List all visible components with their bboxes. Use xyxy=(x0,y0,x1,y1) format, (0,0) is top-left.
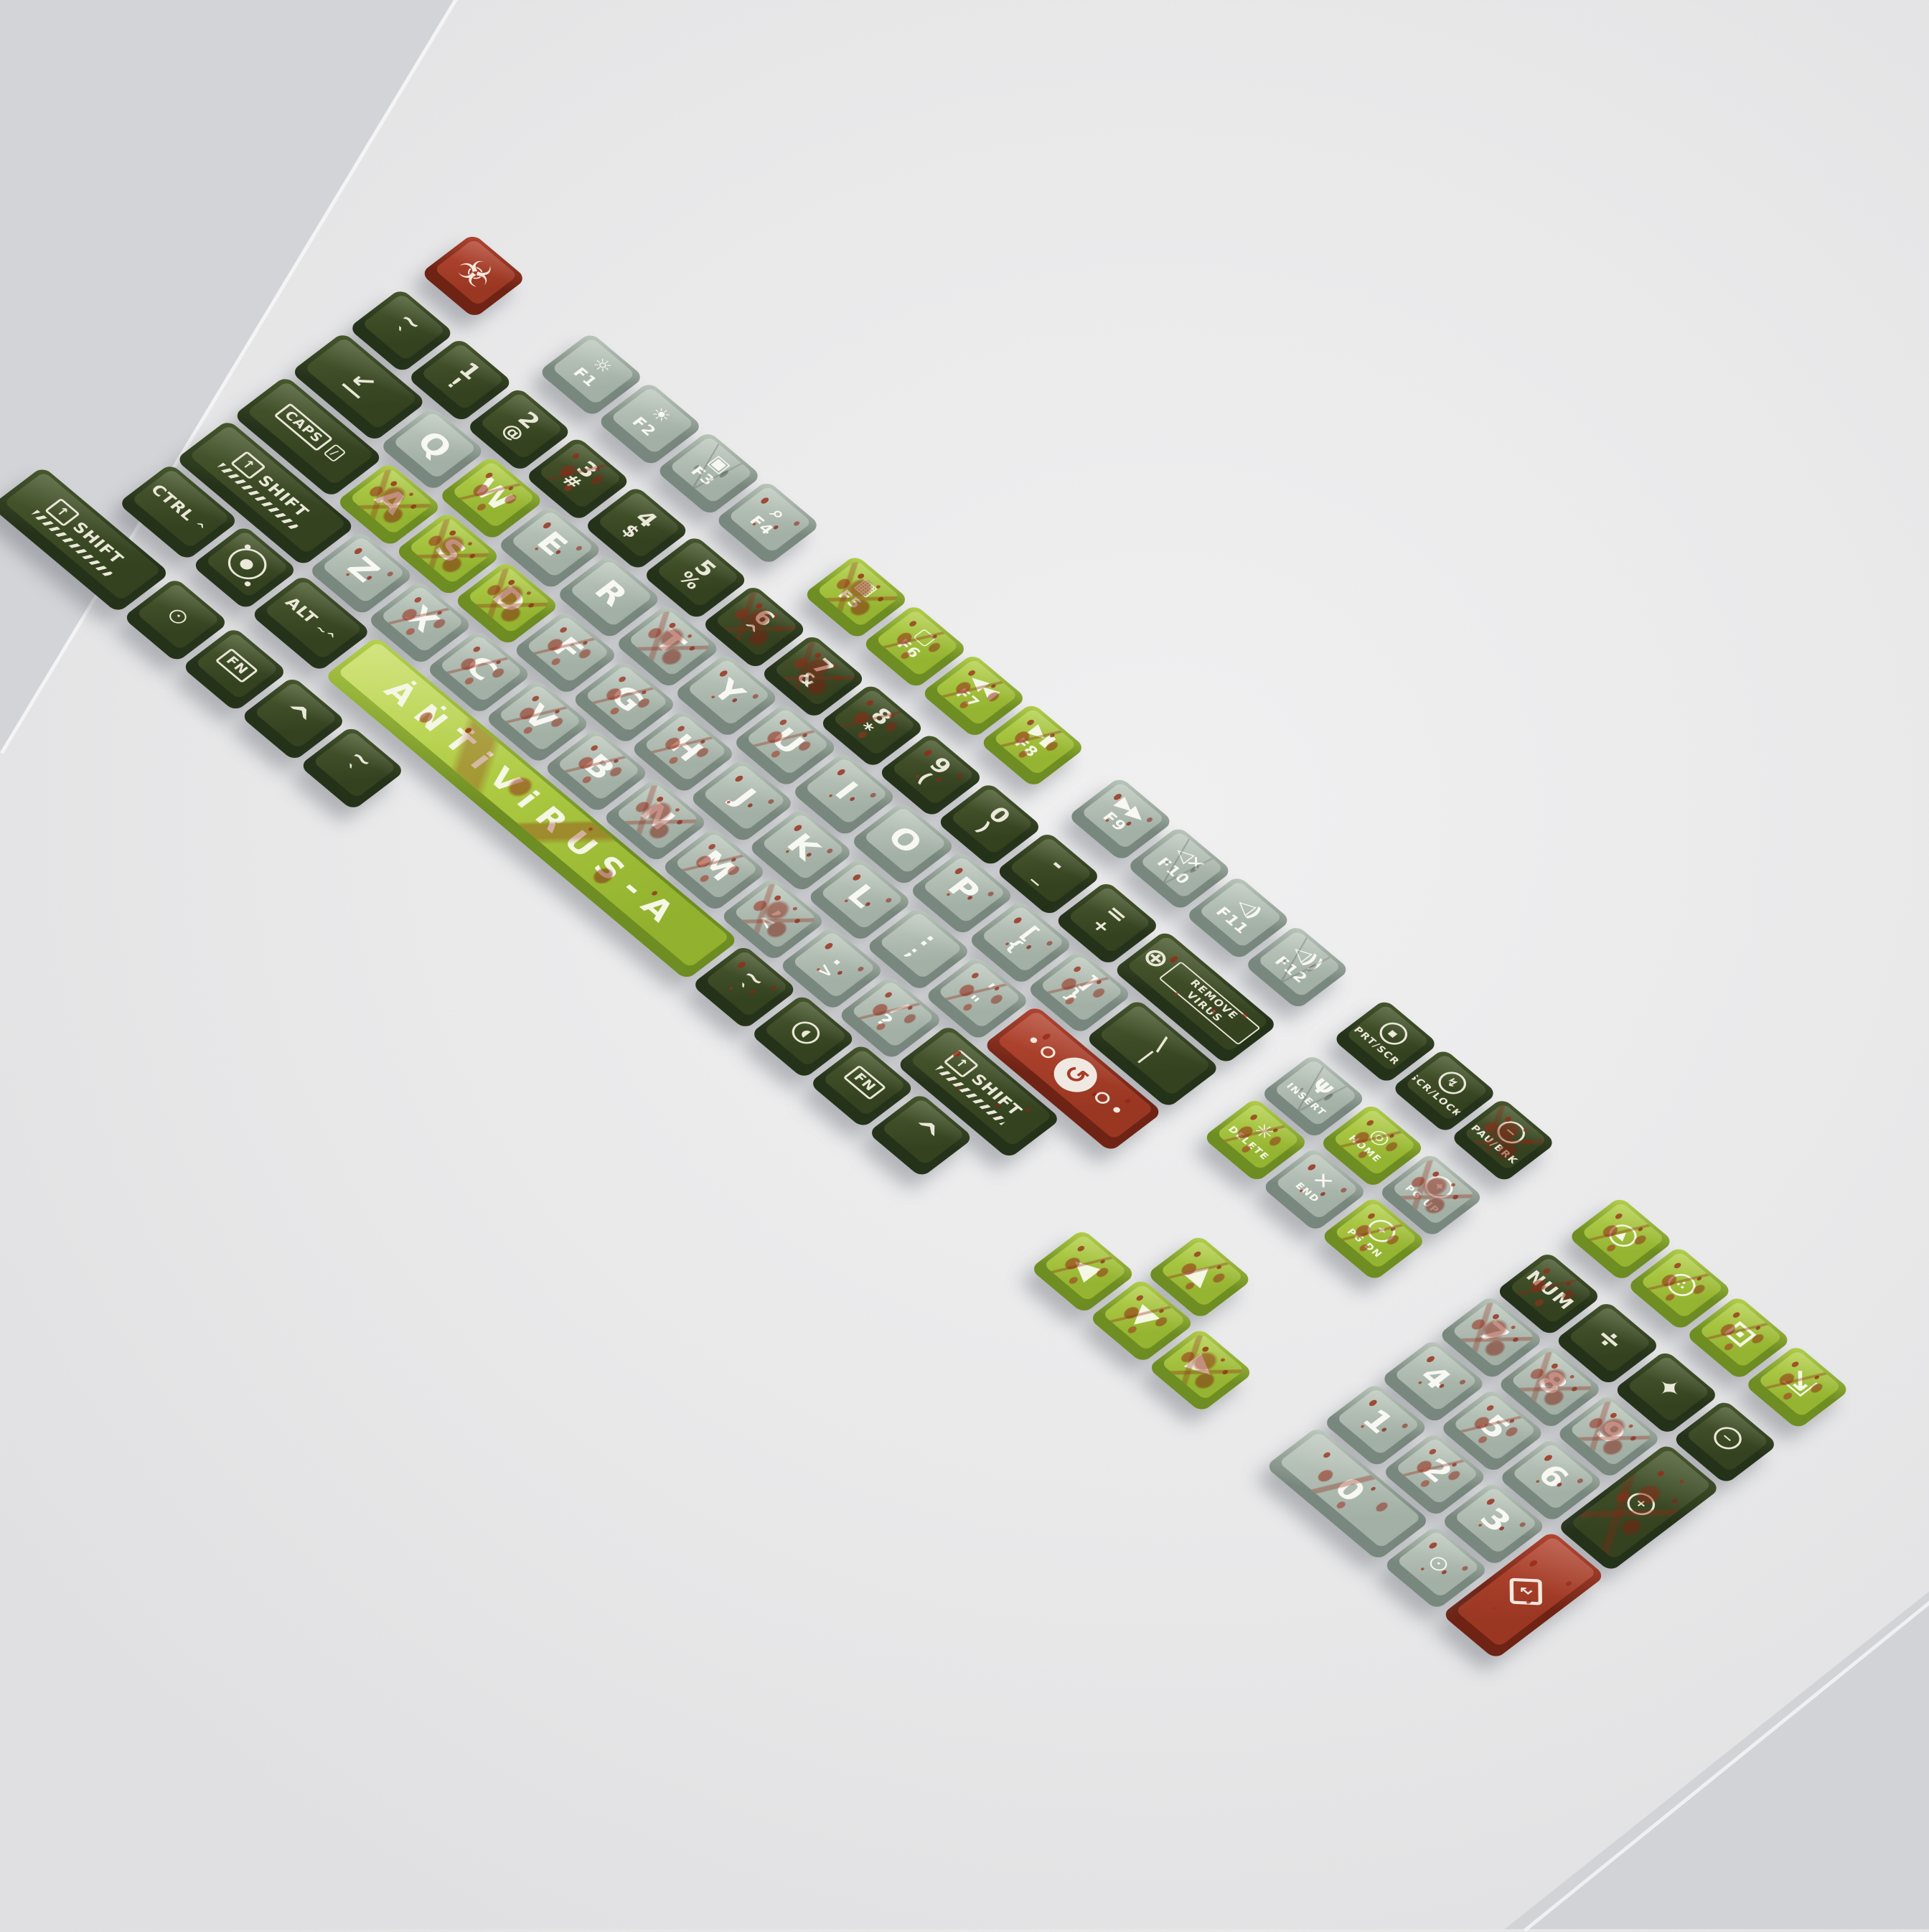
small-target-icon: • xyxy=(166,606,189,626)
numpad-minus-icon: − xyxy=(1708,1422,1747,1454)
arrow-down-icon: ▼ xyxy=(1124,1301,1164,1333)
numpad-multiply-icon: ✦ xyxy=(1648,1373,1689,1405)
arrow-left-icon: ◀ xyxy=(1065,1252,1105,1284)
return-loop-icon: ↺ xyxy=(1045,1051,1106,1099)
numpad-plus-icon: + xyxy=(1621,1488,1661,1519)
return-arrow-icon: ⇲ xyxy=(1778,1366,1821,1401)
search-icon: ⌕ xyxy=(766,505,789,522)
decimal-dot-icon: • xyxy=(1426,1554,1450,1574)
tab-arrow-icon: ↙ xyxy=(342,367,381,398)
key-np0: 0 xyxy=(1264,1426,1430,1561)
biohazard-icon: ☣ xyxy=(448,250,504,294)
key-esc: ☣ xyxy=(421,233,527,319)
focus-target-icon: ⊡ xyxy=(1719,1316,1763,1351)
scene: { "scene":{ "description":"3D render of … xyxy=(0,0,1929,1929)
arrow-up-icon: ▲ xyxy=(1181,1257,1221,1290)
key-np-plus: + xyxy=(1557,1443,1721,1572)
eject-icon: ▲ xyxy=(1603,1219,1643,1251)
key-np-enter: ↵ xyxy=(1441,1530,1605,1659)
caps-check-icon: / xyxy=(323,444,346,462)
numpad-enter-icon: ↵ xyxy=(1509,1577,1541,1605)
aperture-icon: ◖ xyxy=(787,1017,826,1049)
arrow-right-icon: ▶ xyxy=(1183,1350,1223,1382)
table-edge-line xyxy=(1524,1600,1929,1932)
virus-molecule-icon: ∴ xyxy=(1662,1269,1702,1300)
numpad-divide-icon: ÷ xyxy=(1589,1323,1630,1356)
